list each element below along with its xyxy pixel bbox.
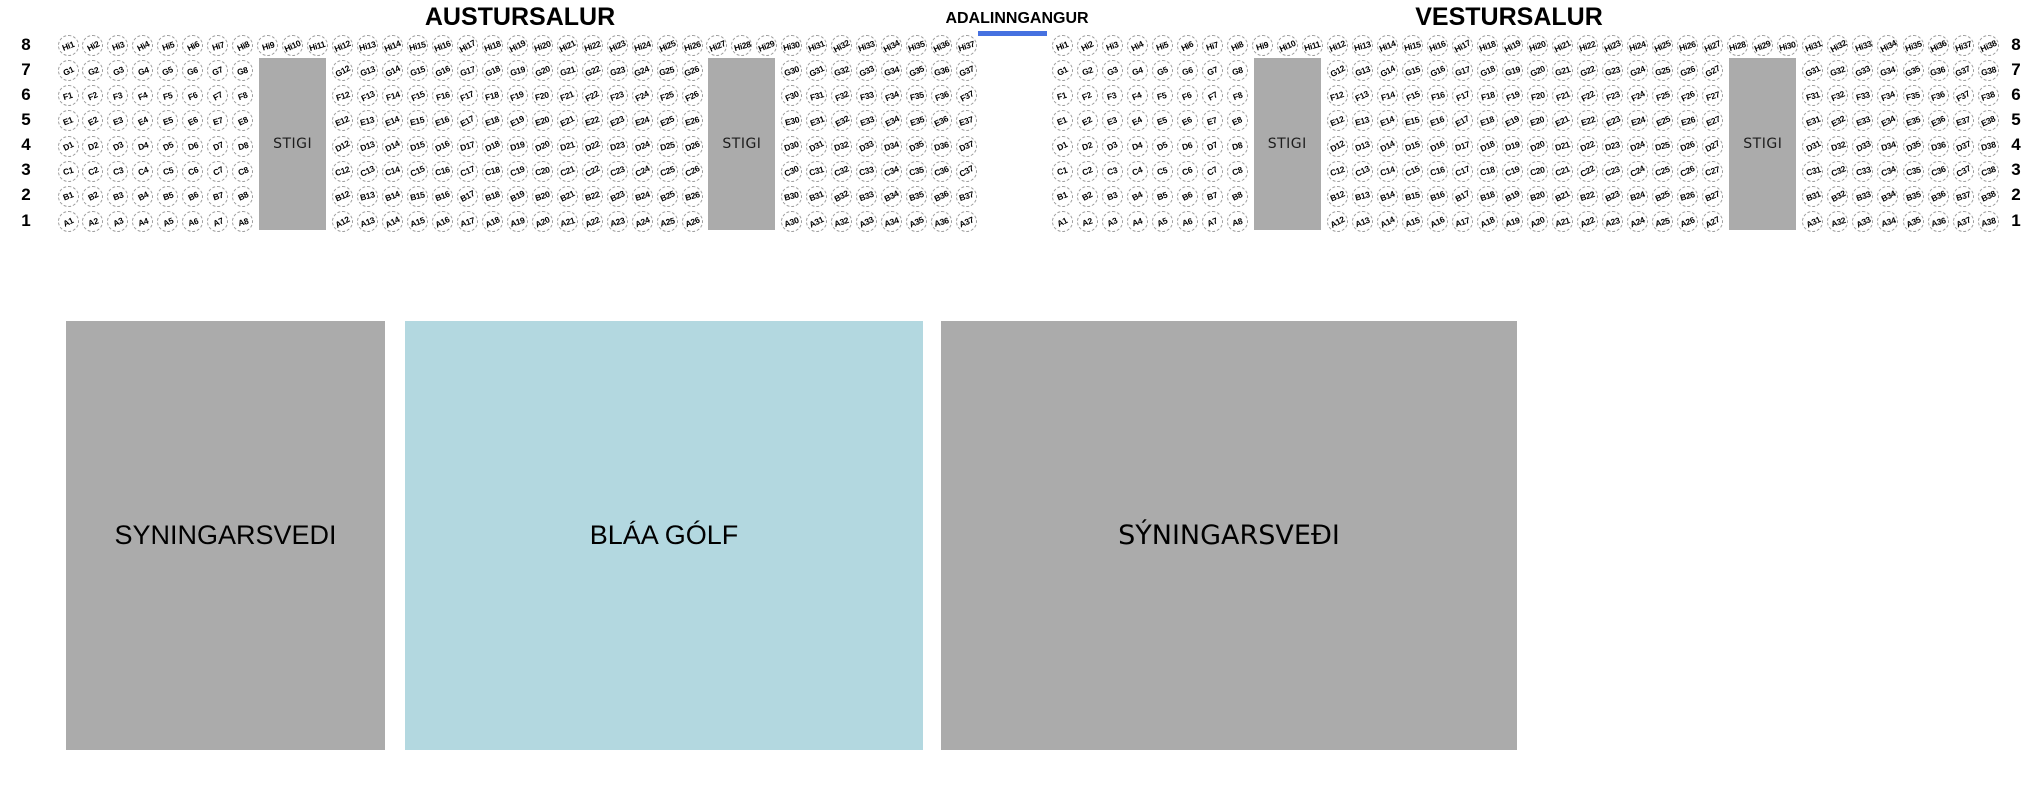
seat-austursalur-D12[interactable]: D12	[332, 136, 353, 157]
seat-austursalur-D6[interactable]: D6	[182, 136, 203, 157]
seat-austursalur-Hi3[interactable]: Hi3	[107, 35, 128, 56]
seat-austursalur-G8[interactable]: G8	[232, 60, 253, 81]
seat-austursalur-C23[interactable]: C23	[607, 161, 628, 182]
seat-vestursalur-B38[interactable]: B38	[1978, 186, 1999, 207]
seat-austursalur-G36[interactable]: G36	[931, 60, 952, 81]
seat-vestursalur-C20[interactable]: C20	[1527, 161, 1548, 182]
seat-austursalur-G16[interactable]: G16	[432, 60, 453, 81]
seat-austursalur-C17[interactable]: C17	[457, 161, 478, 182]
seat-vestursalur-F38[interactable]: F38	[1978, 85, 1999, 106]
seat-austursalur-B35[interactable]: B35	[906, 186, 927, 207]
seat-austursalur-G33[interactable]: G33	[856, 60, 877, 81]
seat-vestursalur-C24[interactable]: C24	[1627, 161, 1648, 182]
seat-vestursalur-Hi23[interactable]: Hi23	[1602, 35, 1623, 56]
seat-vestursalur-B31[interactable]: B31	[1802, 186, 1823, 207]
seat-vestursalur-D38[interactable]: D38	[1978, 136, 1999, 157]
seat-austursalur-E35[interactable]: E35	[906, 110, 927, 131]
seat-austursalur-C1[interactable]: C1	[58, 161, 79, 182]
seat-austursalur-F4[interactable]: F4	[132, 85, 153, 106]
seat-vestursalur-E19[interactable]: E19	[1502, 110, 1523, 131]
seat-vestursalur-A17[interactable]: A17	[1452, 211, 1473, 232]
seat-vestursalur-A27[interactable]: A27	[1702, 211, 1723, 232]
seat-austursalur-Hi7[interactable]: Hi7	[207, 35, 228, 56]
seat-austursalur-D20[interactable]: D20	[532, 136, 553, 157]
seat-vestursalur-E18[interactable]: E18	[1477, 110, 1498, 131]
seat-austursalur-C18[interactable]: C18	[482, 161, 503, 182]
seat-austursalur-G4[interactable]: G4	[132, 60, 153, 81]
seat-austursalur-B31[interactable]: B31	[806, 186, 827, 207]
seat-austursalur-A36[interactable]: A36	[931, 211, 952, 232]
seat-vestursalur-D5[interactable]: D5	[1152, 136, 1173, 157]
seat-austursalur-D8[interactable]: D8	[232, 136, 253, 157]
seat-vestursalur-Hi22[interactable]: Hi22	[1577, 35, 1598, 56]
seat-austursalur-E4[interactable]: E4	[132, 110, 153, 131]
seat-vestursalur-G4[interactable]: G4	[1127, 60, 1148, 81]
seat-vestursalur-E3[interactable]: E3	[1102, 110, 1123, 131]
seat-vestursalur-F3[interactable]: F3	[1102, 85, 1123, 106]
seat-austursalur-F19[interactable]: F19	[507, 85, 528, 106]
seat-vestursalur-F16[interactable]: F16	[1427, 85, 1448, 106]
seat-austursalur-D26[interactable]: D26	[682, 136, 703, 157]
seat-austursalur-B3[interactable]: B3	[107, 186, 128, 207]
seat-austursalur-D17[interactable]: D17	[457, 136, 478, 157]
seat-vestursalur-F12[interactable]: F12	[1327, 85, 1348, 106]
seat-vestursalur-G19[interactable]: G19	[1502, 60, 1523, 81]
seat-austursalur-C4[interactable]: C4	[132, 161, 153, 182]
seat-austursalur-Hi32[interactable]: Hi32	[831, 35, 852, 56]
seat-vestursalur-A20[interactable]: A20	[1527, 211, 1548, 232]
seat-austursalur-D21[interactable]: D21	[557, 136, 578, 157]
seat-austursalur-F25[interactable]: F25	[657, 85, 678, 106]
seat-vestursalur-E36[interactable]: E36	[1928, 110, 1949, 131]
seat-vestursalur-F26[interactable]: F26	[1677, 85, 1698, 106]
seat-austursalur-E33[interactable]: E33	[856, 110, 877, 131]
seat-austursalur-A25[interactable]: A25	[657, 211, 678, 232]
seat-vestursalur-G6[interactable]: G6	[1177, 60, 1198, 81]
seat-vestursalur-E4[interactable]: E4	[1127, 110, 1148, 131]
seat-austursalur-C32[interactable]: C32	[831, 161, 852, 182]
seat-vestursalur-F2[interactable]: F2	[1077, 85, 1098, 106]
seat-austursalur-Hi17[interactable]: Hi17	[457, 35, 478, 56]
seat-vestursalur-G12[interactable]: G12	[1327, 60, 1348, 81]
seat-vestursalur-D22[interactable]: D22	[1577, 136, 1598, 157]
seat-austursalur-F33[interactable]: F33	[856, 85, 877, 106]
seat-vestursalur-B27[interactable]: B27	[1702, 186, 1723, 207]
seat-austursalur-G30[interactable]: G30	[781, 60, 802, 81]
seat-vestursalur-A23[interactable]: A23	[1602, 211, 1623, 232]
seat-vestursalur-G20[interactable]: G20	[1527, 60, 1548, 81]
seat-austursalur-D16[interactable]: D16	[432, 136, 453, 157]
seat-vestursalur-B15[interactable]: B15	[1402, 186, 1423, 207]
seat-austursalur-F3[interactable]: F3	[107, 85, 128, 106]
seat-austursalur-G24[interactable]: G24	[632, 60, 653, 81]
seat-vestursalur-F19[interactable]: F19	[1502, 85, 1523, 106]
seat-austursalur-A3[interactable]: A3	[107, 211, 128, 232]
seat-vestursalur-G7[interactable]: G7	[1202, 60, 1223, 81]
seat-vestursalur-E8[interactable]: E8	[1227, 110, 1248, 131]
seat-vestursalur-Hi7[interactable]: Hi7	[1202, 35, 1223, 56]
seat-austursalur-B24[interactable]: B24	[632, 186, 653, 207]
seat-vestursalur-A14[interactable]: A14	[1377, 211, 1398, 232]
seat-austursalur-E22[interactable]: E22	[582, 110, 603, 131]
seat-vestursalur-Hi27[interactable]: Hi27	[1702, 35, 1723, 56]
seat-austursalur-C12[interactable]: C12	[332, 161, 353, 182]
seat-vestursalur-D23[interactable]: D23	[1602, 136, 1623, 157]
seat-vestursalur-A8[interactable]: A8	[1227, 211, 1248, 232]
seat-austursalur-G2[interactable]: G2	[82, 60, 103, 81]
seat-vestursalur-G36[interactable]: G36	[1928, 60, 1949, 81]
seat-vestursalur-D18[interactable]: D18	[1477, 136, 1498, 157]
seat-vestursalur-A25[interactable]: A25	[1652, 211, 1673, 232]
seat-austursalur-Hi27[interactable]: Hi27	[706, 35, 727, 56]
seat-austursalur-E3[interactable]: E3	[107, 110, 128, 131]
seat-austursalur-A5[interactable]: A5	[157, 211, 178, 232]
seat-vestursalur-F18[interactable]: F18	[1477, 85, 1498, 106]
seat-austursalur-F16[interactable]: F16	[432, 85, 453, 106]
seat-vestursalur-C4[interactable]: C4	[1127, 161, 1148, 182]
seat-austursalur-D1[interactable]: D1	[58, 136, 79, 157]
seat-vestursalur-Hi32[interactable]: Hi32	[1827, 35, 1848, 56]
seat-austursalur-A14[interactable]: A14	[382, 211, 403, 232]
seat-austursalur-E20[interactable]: E20	[532, 110, 553, 131]
seat-austursalur-B16[interactable]: B16	[432, 186, 453, 207]
seat-austursalur-B2[interactable]: B2	[82, 186, 103, 207]
seat-vestursalur-Hi10[interactable]: Hi10	[1277, 35, 1298, 56]
seat-vestursalur-Hi15[interactable]: Hi15	[1402, 35, 1423, 56]
seat-austursalur-Hi8[interactable]: Hi8	[232, 35, 253, 56]
seat-vestursalur-C3[interactable]: C3	[1102, 161, 1123, 182]
seat-vestursalur-B6[interactable]: B6	[1177, 186, 1198, 207]
seat-vestursalur-G17[interactable]: G17	[1452, 60, 1473, 81]
seat-vestursalur-A34[interactable]: A34	[1877, 211, 1898, 232]
seat-vestursalur-B35[interactable]: B35	[1903, 186, 1924, 207]
seat-austursalur-A17[interactable]: A17	[457, 211, 478, 232]
seat-austursalur-G14[interactable]: G14	[382, 60, 403, 81]
seat-vestursalur-B17[interactable]: B17	[1452, 186, 1473, 207]
seat-vestursalur-F25[interactable]: F25	[1652, 85, 1673, 106]
seat-austursalur-F15[interactable]: F15	[407, 85, 428, 106]
seat-austursalur-G35[interactable]: G35	[906, 60, 927, 81]
seat-austursalur-C22[interactable]: C22	[582, 161, 603, 182]
seat-vestursalur-B8[interactable]: B8	[1227, 186, 1248, 207]
seat-vestursalur-G15[interactable]: G15	[1402, 60, 1423, 81]
seat-austursalur-D23[interactable]: D23	[607, 136, 628, 157]
seat-vestursalur-E38[interactable]: E38	[1978, 110, 1999, 131]
seat-vestursalur-A24[interactable]: A24	[1627, 211, 1648, 232]
seat-austursalur-E12[interactable]: E12	[332, 110, 353, 131]
seat-vestursalur-C26[interactable]: C26	[1677, 161, 1698, 182]
seat-austursalur-Hi24[interactable]: Hi24	[632, 35, 653, 56]
seat-austursalur-A13[interactable]: A13	[357, 211, 378, 232]
seat-austursalur-Hi21[interactable]: Hi21	[557, 35, 578, 56]
seat-vestursalur-G21[interactable]: G21	[1552, 60, 1573, 81]
seat-vestursalur-A35[interactable]: A35	[1903, 211, 1924, 232]
seat-austursalur-D4[interactable]: D4	[132, 136, 153, 157]
seat-austursalur-Hi28[interactable]: Hi28	[731, 35, 752, 56]
seat-austursalur-G25[interactable]: G25	[657, 60, 678, 81]
seat-austursalur-F26[interactable]: F26	[682, 85, 703, 106]
seat-austursalur-G32[interactable]: G32	[831, 60, 852, 81]
seat-vestursalur-B5[interactable]: B5	[1152, 186, 1173, 207]
seat-austursalur-C19[interactable]: C19	[507, 161, 528, 182]
seat-austursalur-G12[interactable]: G12	[332, 60, 353, 81]
seat-vestursalur-E17[interactable]: E17	[1452, 110, 1473, 131]
seat-vestursalur-Hi1[interactable]: Hi1	[1052, 35, 1073, 56]
seat-vestursalur-E5[interactable]: E5	[1152, 110, 1173, 131]
seat-vestursalur-B3[interactable]: B3	[1102, 186, 1123, 207]
seat-vestursalur-B19[interactable]: B19	[1502, 186, 1523, 207]
seat-austursalur-Hi36[interactable]: Hi36	[931, 35, 952, 56]
seat-austursalur-B1[interactable]: B1	[58, 186, 79, 207]
seat-vestursalur-G25[interactable]: G25	[1652, 60, 1673, 81]
seat-austursalur-A7[interactable]: A7	[207, 211, 228, 232]
seat-vestursalur-A37[interactable]: A37	[1953, 211, 1974, 232]
seat-vestursalur-Hi26[interactable]: Hi26	[1677, 35, 1698, 56]
seat-vestursalur-F8[interactable]: F8	[1227, 85, 1248, 106]
seat-austursalur-E1[interactable]: E1	[58, 110, 79, 131]
seat-austursalur-E14[interactable]: E14	[382, 110, 403, 131]
seat-austursalur-B19[interactable]: B19	[507, 186, 528, 207]
seat-austursalur-D30[interactable]: D30	[781, 136, 802, 157]
seat-vestursalur-B4[interactable]: B4	[1127, 186, 1148, 207]
seat-austursalur-D36[interactable]: D36	[931, 136, 952, 157]
seat-vestursalur-D33[interactable]: D33	[1852, 136, 1873, 157]
seat-vestursalur-C31[interactable]: C31	[1802, 161, 1823, 182]
seat-vestursalur-A22[interactable]: A22	[1577, 211, 1598, 232]
seat-vestursalur-C19[interactable]: C19	[1502, 161, 1523, 182]
seat-austursalur-A32[interactable]: A32	[831, 211, 852, 232]
seat-austursalur-E32[interactable]: E32	[831, 110, 852, 131]
seat-vestursalur-Hi31[interactable]: Hi31	[1802, 35, 1823, 56]
seat-vestursalur-Hi12[interactable]: Hi12	[1327, 35, 1348, 56]
seat-austursalur-G7[interactable]: G7	[207, 60, 228, 81]
seat-vestursalur-C22[interactable]: C22	[1577, 161, 1598, 182]
seat-austursalur-C14[interactable]: C14	[382, 161, 403, 182]
seat-austursalur-Hi25[interactable]: Hi25	[657, 35, 678, 56]
seat-vestursalur-F14[interactable]: F14	[1377, 85, 1398, 106]
seat-vestursalur-Hi3[interactable]: Hi3	[1102, 35, 1123, 56]
seat-vestursalur-Hi33[interactable]: Hi33	[1852, 35, 1873, 56]
seat-vestursalur-Hi6[interactable]: Hi6	[1177, 35, 1198, 56]
floor-area-blaa-golf[interactable]: BLÁA GÓLF	[405, 321, 923, 750]
seat-vestursalur-Hi16[interactable]: Hi16	[1427, 35, 1448, 56]
seat-vestursalur-Hi8[interactable]: Hi8	[1227, 35, 1248, 56]
seat-vestursalur-Hi5[interactable]: Hi5	[1152, 35, 1173, 56]
seat-austursalur-C36[interactable]: C36	[931, 161, 952, 182]
seat-vestursalur-D6[interactable]: D6	[1177, 136, 1198, 157]
seat-vestursalur-E21[interactable]: E21	[1552, 110, 1573, 131]
seat-vestursalur-D37[interactable]: D37	[1953, 136, 1974, 157]
seat-austursalur-B13[interactable]: B13	[357, 186, 378, 207]
seat-vestursalur-G26[interactable]: G26	[1677, 60, 1698, 81]
seat-austursalur-F7[interactable]: F7	[207, 85, 228, 106]
seat-austursalur-E8[interactable]: E8	[232, 110, 253, 131]
seat-vestursalur-D14[interactable]: D14	[1377, 136, 1398, 157]
seat-vestursalur-G1[interactable]: G1	[1052, 60, 1073, 81]
seat-austursalur-B26[interactable]: B26	[682, 186, 703, 207]
seat-vestursalur-F22[interactable]: F22	[1577, 85, 1598, 106]
seat-austursalur-B36[interactable]: B36	[931, 186, 952, 207]
seat-austursalur-Hi5[interactable]: Hi5	[157, 35, 178, 56]
seat-vestursalur-F6[interactable]: F6	[1177, 85, 1198, 106]
seat-vestursalur-D32[interactable]: D32	[1827, 136, 1848, 157]
seat-austursalur-C26[interactable]: C26	[682, 161, 703, 182]
seat-vestursalur-C32[interactable]: C32	[1827, 161, 1848, 182]
seat-austursalur-D35[interactable]: D35	[906, 136, 927, 157]
seat-austursalur-C5[interactable]: C5	[157, 161, 178, 182]
seat-austursalur-G3[interactable]: G3	[107, 60, 128, 81]
seat-austursalur-F2[interactable]: F2	[82, 85, 103, 106]
seat-austursalur-F34[interactable]: F34	[881, 85, 902, 106]
seat-austursalur-D19[interactable]: D19	[507, 136, 528, 157]
seat-austursalur-D7[interactable]: D7	[207, 136, 228, 157]
seat-vestursalur-C35[interactable]: C35	[1903, 161, 1924, 182]
seat-austursalur-G26[interactable]: G26	[682, 60, 703, 81]
seat-austursalur-E7[interactable]: E7	[207, 110, 228, 131]
seat-austursalur-D25[interactable]: D25	[657, 136, 678, 157]
seat-austursalur-A34[interactable]: A34	[881, 211, 902, 232]
seat-vestursalur-D35[interactable]: D35	[1903, 136, 1924, 157]
seat-vestursalur-G3[interactable]: G3	[1102, 60, 1123, 81]
seat-vestursalur-A13[interactable]: A13	[1352, 211, 1373, 232]
seat-vestursalur-Hi28[interactable]: Hi28	[1727, 35, 1748, 56]
seat-vestursalur-D27[interactable]: D27	[1702, 136, 1723, 157]
seat-vestursalur-Hi4[interactable]: Hi4	[1127, 35, 1148, 56]
seat-vestursalur-D20[interactable]: D20	[1527, 136, 1548, 157]
seat-austursalur-F22[interactable]: F22	[582, 85, 603, 106]
seat-austursalur-F18[interactable]: F18	[482, 85, 503, 106]
seat-austursalur-F31[interactable]: F31	[806, 85, 827, 106]
seat-vestursalur-D2[interactable]: D2	[1077, 136, 1098, 157]
seat-austursalur-A26[interactable]: A26	[682, 211, 703, 232]
seat-austursalur-C25[interactable]: C25	[657, 161, 678, 182]
seat-vestursalur-F35[interactable]: F35	[1903, 85, 1924, 106]
seat-austursalur-Hi30[interactable]: Hi30	[781, 35, 802, 56]
seat-vestursalur-E6[interactable]: E6	[1177, 110, 1198, 131]
seat-vestursalur-F34[interactable]: F34	[1877, 85, 1898, 106]
seat-vestursalur-C7[interactable]: C7	[1202, 161, 1223, 182]
seat-vestursalur-E34[interactable]: E34	[1877, 110, 1898, 131]
seat-vestursalur-G2[interactable]: G2	[1077, 60, 1098, 81]
seat-vestursalur-A4[interactable]: A4	[1127, 211, 1148, 232]
seat-vestursalur-E1[interactable]: E1	[1052, 110, 1073, 131]
seat-vestursalur-B20[interactable]: B20	[1527, 186, 1548, 207]
seat-austursalur-A31[interactable]: A31	[806, 211, 827, 232]
seat-austursalur-F8[interactable]: F8	[232, 85, 253, 106]
seat-austursalur-F12[interactable]: F12	[332, 85, 353, 106]
seat-austursalur-Hi13[interactable]: Hi13	[357, 35, 378, 56]
seat-austursalur-F23[interactable]: F23	[607, 85, 628, 106]
seat-austursalur-C16[interactable]: C16	[432, 161, 453, 182]
seat-vestursalur-G23[interactable]: G23	[1602, 60, 1623, 81]
seat-austursalur-F21[interactable]: F21	[557, 85, 578, 106]
seat-vestursalur-Hi38[interactable]: Hi38	[1978, 35, 1999, 56]
seat-vestursalur-C15[interactable]: C15	[1402, 161, 1423, 182]
seat-vestursalur-E12[interactable]: E12	[1327, 110, 1348, 131]
seat-vestursalur-B23[interactable]: B23	[1602, 186, 1623, 207]
seat-austursalur-Hi2[interactable]: Hi2	[82, 35, 103, 56]
seat-austursalur-D32[interactable]: D32	[831, 136, 852, 157]
seat-vestursalur-A33[interactable]: A33	[1852, 211, 1873, 232]
seat-vestursalur-A1[interactable]: A1	[1052, 211, 1073, 232]
seat-austursalur-B6[interactable]: B6	[182, 186, 203, 207]
seat-vestursalur-G35[interactable]: G35	[1903, 60, 1924, 81]
seat-austursalur-C6[interactable]: C6	[182, 161, 203, 182]
seat-austursalur-F13[interactable]: F13	[357, 85, 378, 106]
seat-vestursalur-Hi13[interactable]: Hi13	[1352, 35, 1373, 56]
seat-austursalur-D34[interactable]: D34	[881, 136, 902, 157]
seat-austursalur-E18[interactable]: E18	[482, 110, 503, 131]
seat-austursalur-G21[interactable]: G21	[557, 60, 578, 81]
seat-austursalur-E24[interactable]: E24	[632, 110, 653, 131]
seat-austursalur-B23[interactable]: B23	[607, 186, 628, 207]
seat-vestursalur-F33[interactable]: F33	[1852, 85, 1873, 106]
seat-vestursalur-F27[interactable]: F27	[1702, 85, 1723, 106]
seat-vestursalur-B22[interactable]: B22	[1577, 186, 1598, 207]
seat-vestursalur-A3[interactable]: A3	[1102, 211, 1123, 232]
seat-austursalur-B20[interactable]: B20	[532, 186, 553, 207]
seat-austursalur-F37[interactable]: F37	[956, 85, 977, 106]
seat-vestursalur-F23[interactable]: F23	[1602, 85, 1623, 106]
seat-vestursalur-Hi2[interactable]: Hi2	[1077, 35, 1098, 56]
seat-vestursalur-A36[interactable]: A36	[1928, 211, 1949, 232]
seat-vestursalur-D7[interactable]: D7	[1202, 136, 1223, 157]
seat-austursalur-E16[interactable]: E16	[432, 110, 453, 131]
seat-austursalur-Hi23[interactable]: Hi23	[607, 35, 628, 56]
seat-vestursalur-Hi24[interactable]: Hi24	[1627, 35, 1648, 56]
seat-austursalur-F17[interactable]: F17	[457, 85, 478, 106]
seat-austursalur-B12[interactable]: B12	[332, 186, 353, 207]
seat-austursalur-D33[interactable]: D33	[856, 136, 877, 157]
seat-vestursalur-D3[interactable]: D3	[1102, 136, 1123, 157]
seat-austursalur-D13[interactable]: D13	[357, 136, 378, 157]
seat-vestursalur-E15[interactable]: E15	[1402, 110, 1423, 131]
seat-vestursalur-Hi18[interactable]: Hi18	[1477, 35, 1498, 56]
seat-austursalur-B25[interactable]: B25	[657, 186, 678, 207]
seat-vestursalur-D17[interactable]: D17	[1452, 136, 1473, 157]
seat-austursalur-A33[interactable]: A33	[856, 211, 877, 232]
seat-vestursalur-Hi36[interactable]: Hi36	[1928, 35, 1949, 56]
seat-vestursalur-G14[interactable]: G14	[1377, 60, 1398, 81]
seat-austursalur-E5[interactable]: E5	[157, 110, 178, 131]
seat-vestursalur-C38[interactable]: C38	[1978, 161, 1999, 182]
seat-austursalur-E6[interactable]: E6	[182, 110, 203, 131]
seat-austursalur-B34[interactable]: B34	[881, 186, 902, 207]
seat-austursalur-D15[interactable]: D15	[407, 136, 428, 157]
seat-austursalur-A4[interactable]: A4	[132, 211, 153, 232]
seat-austursalur-B21[interactable]: B21	[557, 186, 578, 207]
seat-vestursalur-A19[interactable]: A19	[1502, 211, 1523, 232]
seat-austursalur-B37[interactable]: B37	[956, 186, 977, 207]
seat-austursalur-C2[interactable]: C2	[82, 161, 103, 182]
seat-vestursalur-F36[interactable]: F36	[1928, 85, 1949, 106]
seat-vestursalur-Hi34[interactable]: Hi34	[1877, 35, 1898, 56]
seat-vestursalur-G33[interactable]: G33	[1852, 60, 1873, 81]
seat-austursalur-A37[interactable]: A37	[956, 211, 977, 232]
seat-austursalur-C33[interactable]: C33	[856, 161, 877, 182]
seat-austursalur-G13[interactable]: G13	[357, 60, 378, 81]
seat-vestursalur-F24[interactable]: F24	[1627, 85, 1648, 106]
seat-austursalur-D31[interactable]: D31	[806, 136, 827, 157]
seat-vestursalur-Hi19[interactable]: Hi19	[1502, 35, 1523, 56]
seat-austursalur-Hi26[interactable]: Hi26	[682, 35, 703, 56]
seat-austursalur-B8[interactable]: B8	[232, 186, 253, 207]
seat-vestursalur-G16[interactable]: G16	[1427, 60, 1448, 81]
seat-austursalur-A30[interactable]: A30	[781, 211, 802, 232]
seat-vestursalur-Hi35[interactable]: Hi35	[1903, 35, 1924, 56]
seat-austursalur-D5[interactable]: D5	[157, 136, 178, 157]
seat-vestursalur-Hi20[interactable]: Hi20	[1527, 35, 1548, 56]
